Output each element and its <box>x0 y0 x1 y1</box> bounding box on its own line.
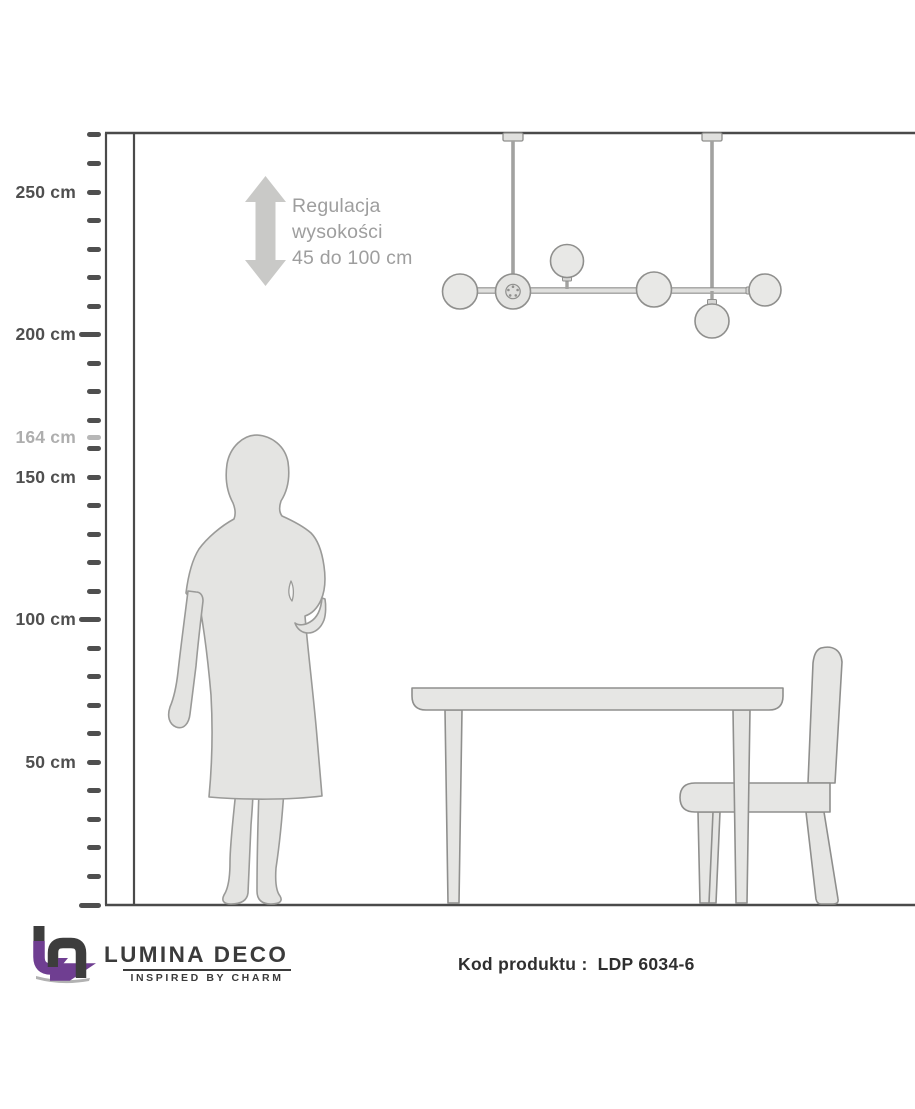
scale-label-100cm: 100 cm <box>0 609 76 630</box>
dimension-diagram: 250 cm200 cm164 cm150 cm100 cm50 cm Regu… <box>0 0 915 1109</box>
ruler-tick-0cm <box>79 903 101 908</box>
ruler-tick-140cm <box>87 503 101 508</box>
glass-ball-3 <box>551 245 584 278</box>
ruler-tick-250cm <box>87 190 101 195</box>
ruler-tick-100cm <box>79 617 101 622</box>
ceiling-mount-right <box>702 133 722 141</box>
ruler-tick-70cm <box>87 703 101 708</box>
ruler-tick-30cm <box>87 817 101 822</box>
ruler-tick-80cm <box>87 674 101 679</box>
ruler-tick-160cm <box>87 446 101 451</box>
height-ruler: 250 cm200 cm164 cm150 cm100 cm50 cm <box>0 0 110 1109</box>
height-adjust-annotation: Regulacja wysokości 45 do 100 cm <box>292 193 413 271</box>
chair-backrest <box>808 647 842 783</box>
ruler-tick-20cm <box>87 845 101 850</box>
brand-name: LUMINA DECO <box>104 942 288 968</box>
table-leg-left <box>445 710 462 903</box>
person-body <box>186 435 325 799</box>
brand-tagline: INSPIRED BY CHARM <box>123 972 291 984</box>
ruler-tick-40cm <box>87 788 101 793</box>
chair-rear-leg <box>806 812 838 904</box>
annotation-line-1: Regulacja <box>292 193 413 219</box>
chair-seat <box>680 783 830 812</box>
ruler-tick-130cm <box>87 532 101 537</box>
scale-label-250cm: 250 cm <box>0 182 76 203</box>
glass-ball-1 <box>443 274 478 309</box>
ruler-tick-50cm <box>87 760 101 765</box>
ruler-tick-190cm <box>87 361 101 366</box>
product-code-value: LDP 6034-6 <box>598 954 695 974</box>
glass-ball-6 <box>749 274 781 306</box>
person-arm-left <box>169 591 203 728</box>
product-code-label: Kod produktu : <box>458 954 588 974</box>
height-adjust-arrow <box>245 176 286 286</box>
brand-underline <box>123 969 291 971</box>
ruler-tick-230cm <box>87 247 101 252</box>
ruler-tick-260cm <box>87 161 101 166</box>
ruler-tick-10cm <box>87 874 101 879</box>
ceiling-mount-left <box>503 133 523 141</box>
product-code-line: Kod produktu :LDP 6034-6 <box>458 954 695 975</box>
ruler-tick-170cm <box>87 418 101 423</box>
ruler-tick-240cm <box>87 218 101 223</box>
ruler-tick-60cm <box>87 731 101 736</box>
ruler-tick-220cm <box>87 275 101 280</box>
ruler-tick-150cm <box>87 475 101 480</box>
ruler-tick-270cm <box>87 132 101 137</box>
glass-ball-4 <box>637 272 672 307</box>
chair-illustration <box>680 647 842 904</box>
ruler-tick-180cm <box>87 389 101 394</box>
person-silhouette <box>169 435 326 904</box>
ruler-tick-210cm <box>87 304 101 309</box>
ruler-tick-120cm <box>87 560 101 565</box>
pendant-lamp <box>443 133 782 338</box>
scale-label-150cm: 150 cm <box>0 467 76 488</box>
person-leg-right <box>257 790 284 904</box>
person-leg-left <box>223 790 253 904</box>
ruler-tick-110cm <box>87 589 101 594</box>
table-top <box>412 688 783 710</box>
glass-ball-5 <box>695 304 729 338</box>
table-leg-right <box>733 710 750 903</box>
scale-label-200cm: 200 cm <box>0 324 76 345</box>
annotation-line-2: wysokości <box>292 219 413 245</box>
person-hand-detail <box>289 581 294 601</box>
scale-label-50cm: 50 cm <box>0 752 76 773</box>
scale-label-164cm: 164 cm <box>0 427 76 448</box>
ruler-tick-164cm <box>87 435 101 440</box>
ruler-tick-90cm <box>87 646 101 651</box>
annotation-line-3: 45 do 100 cm <box>292 245 413 271</box>
ruler-tick-200cm <box>79 332 101 337</box>
